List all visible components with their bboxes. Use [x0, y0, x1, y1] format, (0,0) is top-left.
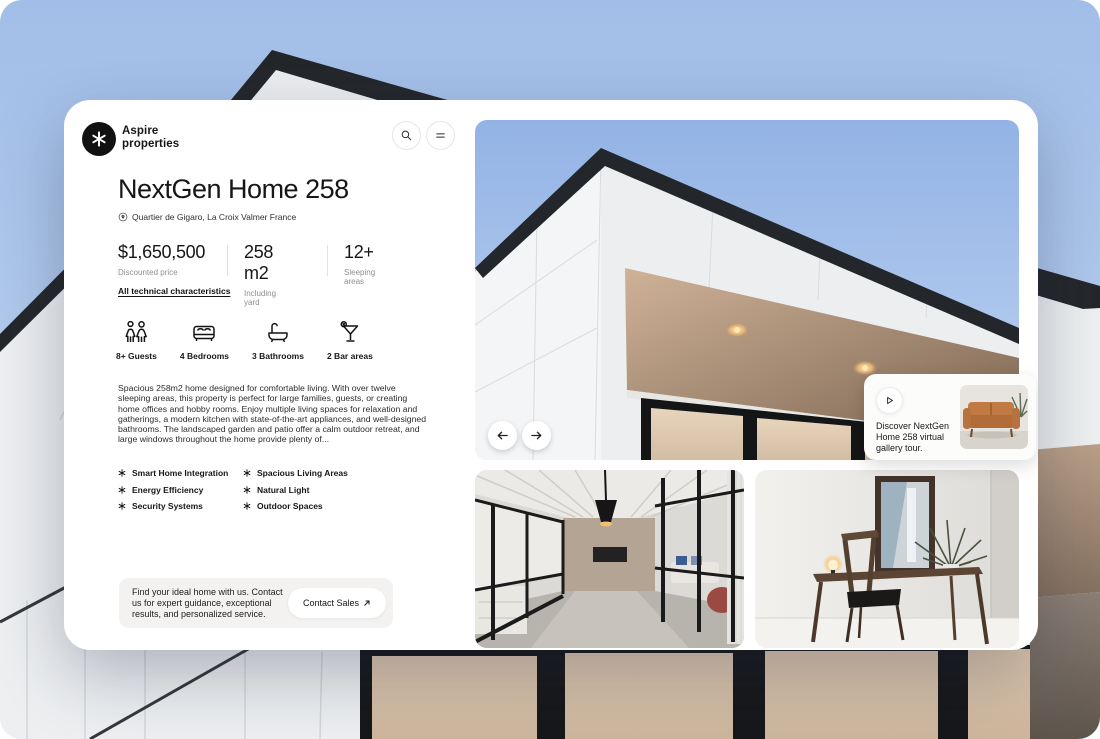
gallery-prev-button[interactable] — [488, 421, 517, 450]
feature-item: Outdoor Spaces — [243, 501, 368, 511]
cocktail-icon — [337, 320, 363, 344]
asterisk-icon — [118, 502, 126, 510]
amenity-bar: 2 Bar areas — [327, 320, 373, 361]
bed-icon — [191, 320, 217, 344]
amenity-bedrooms: 4 Bedrooms — [180, 320, 229, 361]
feature-label: Energy Efficiency — [132, 485, 203, 495]
contact-message: Find your ideal home with us. Contact us… — [132, 587, 294, 620]
brand-line2: properties — [122, 138, 179, 151]
feature-label: Security Systems — [132, 501, 203, 511]
hallway-photo-scene — [475, 470, 744, 648]
stat-area-value: 258 m2 — [244, 242, 276, 284]
amenity-bathrooms-label: 3 Bathrooms — [252, 351, 304, 361]
asterisk-icon — [243, 486, 251, 494]
stat-sleeping: 12+ Sleeping areas — [344, 242, 375, 286]
arrow-left-icon — [496, 429, 509, 442]
guests-icon — [123, 320, 149, 344]
brand-name: Aspire properties — [122, 125, 179, 150]
all-technical-characteristics-link[interactable]: All technical characteristics — [118, 286, 230, 296]
asterisk-icon — [243, 502, 251, 510]
feature-item: Security Systems — [118, 501, 243, 511]
tour-caption: Discover NextGen Home 258 virtual galler… — [876, 421, 962, 453]
property-location: Quartier de Gigaro, La Croix Valmer Fran… — [118, 212, 296, 222]
stat-price-label: Discounted price — [118, 268, 205, 277]
location-text: Quartier de Gigaro, La Croix Valmer Fran… — [132, 212, 296, 222]
stat-area-label: Including yard — [244, 289, 276, 307]
asterisk-icon — [118, 469, 126, 477]
stat-divider — [227, 245, 228, 276]
tour-play-button[interactable] — [876, 387, 903, 414]
feature-label: Outdoor Spaces — [257, 501, 323, 511]
arrow-up-right-icon — [363, 599, 371, 607]
feature-item: Energy Efficiency — [118, 485, 243, 495]
arrow-right-icon — [530, 429, 543, 442]
amenities-row: 8+ Guests 4 Bedrooms — [116, 320, 373, 361]
property-description: Spacious 258m2 home designed for comfort… — [118, 383, 428, 445]
asterisk-logo-icon — [90, 130, 108, 148]
feature-item: Smart Home Integration — [118, 468, 243, 478]
features-column-2: Spacious Living Areas Natural Light Outd… — [243, 468, 368, 511]
amenity-bar-label: 2 Bar areas — [327, 351, 373, 361]
play-icon — [885, 396, 894, 405]
tour-thumbnail-sofa — [960, 385, 1028, 449]
amenity-guests: 8+ Guests — [116, 320, 157, 361]
stat-divider — [327, 245, 328, 276]
map-pin-icon — [118, 212, 128, 222]
gallery-photo-interior-desk[interactable] — [755, 470, 1019, 648]
stat-area: 258 m2 Including yard — [244, 242, 276, 307]
amenity-bathrooms: 3 Bathrooms — [252, 320, 304, 361]
stat-price: $1,650,500 Discounted price — [118, 242, 205, 277]
contact-sales-label: Contact Sales — [303, 598, 359, 608]
hamburger-menu-icon — [434, 129, 447, 142]
features-column-1: Smart Home Integration Energy Efficiency… — [118, 468, 243, 511]
stat-price-value: $1,650,500 — [118, 242, 205, 263]
amenity-guests-label: 8+ Guests — [116, 351, 157, 361]
stat-sleeping-label: Sleeping areas — [344, 268, 375, 286]
contact-sales-button[interactable]: Contact Sales — [288, 588, 386, 618]
feature-item: Spacious Living Areas — [243, 468, 368, 478]
listing-card: Aspire properties NextGen Home 258 Quart… — [64, 100, 1038, 650]
brand-line1: Aspire — [122, 125, 179, 138]
amenity-bedrooms-label: 4 Bedrooms — [180, 351, 229, 361]
asterisk-icon — [243, 469, 251, 477]
feature-label: Smart Home Integration — [132, 468, 228, 478]
features-list: Smart Home Integration Energy Efficiency… — [118, 468, 368, 511]
contact-banner: Find your ideal home with us. Contact us… — [119, 578, 393, 628]
search-button[interactable] — [392, 121, 421, 150]
sofa-thumbnail-scene — [960, 385, 1028, 449]
brand-logo[interactable] — [82, 122, 116, 156]
page-title: NextGen Home 258 — [118, 174, 349, 205]
search-icon — [400, 129, 413, 142]
feature-label: Natural Light — [257, 485, 309, 495]
feature-item: Natural Light — [243, 485, 368, 495]
bathtub-icon — [265, 320, 291, 344]
stat-sleeping-value: 12+ — [344, 242, 375, 263]
feature-label: Spacious Living Areas — [257, 468, 348, 478]
gallery-next-button[interactable] — [522, 421, 551, 450]
page: Aspire properties NextGen Home 258 Quart… — [0, 0, 1100, 739]
virtual-tour-card[interactable]: Discover NextGen Home 258 virtual galler… — [864, 374, 1036, 460]
asterisk-icon — [118, 486, 126, 494]
menu-button[interactable] — [426, 121, 455, 150]
photo-gallery: Discover NextGen Home 258 virtual galler… — [475, 120, 1019, 648]
gallery-photo-interior-hallway[interactable] — [475, 470, 744, 648]
desk-photo-scene — [755, 470, 1019, 648]
